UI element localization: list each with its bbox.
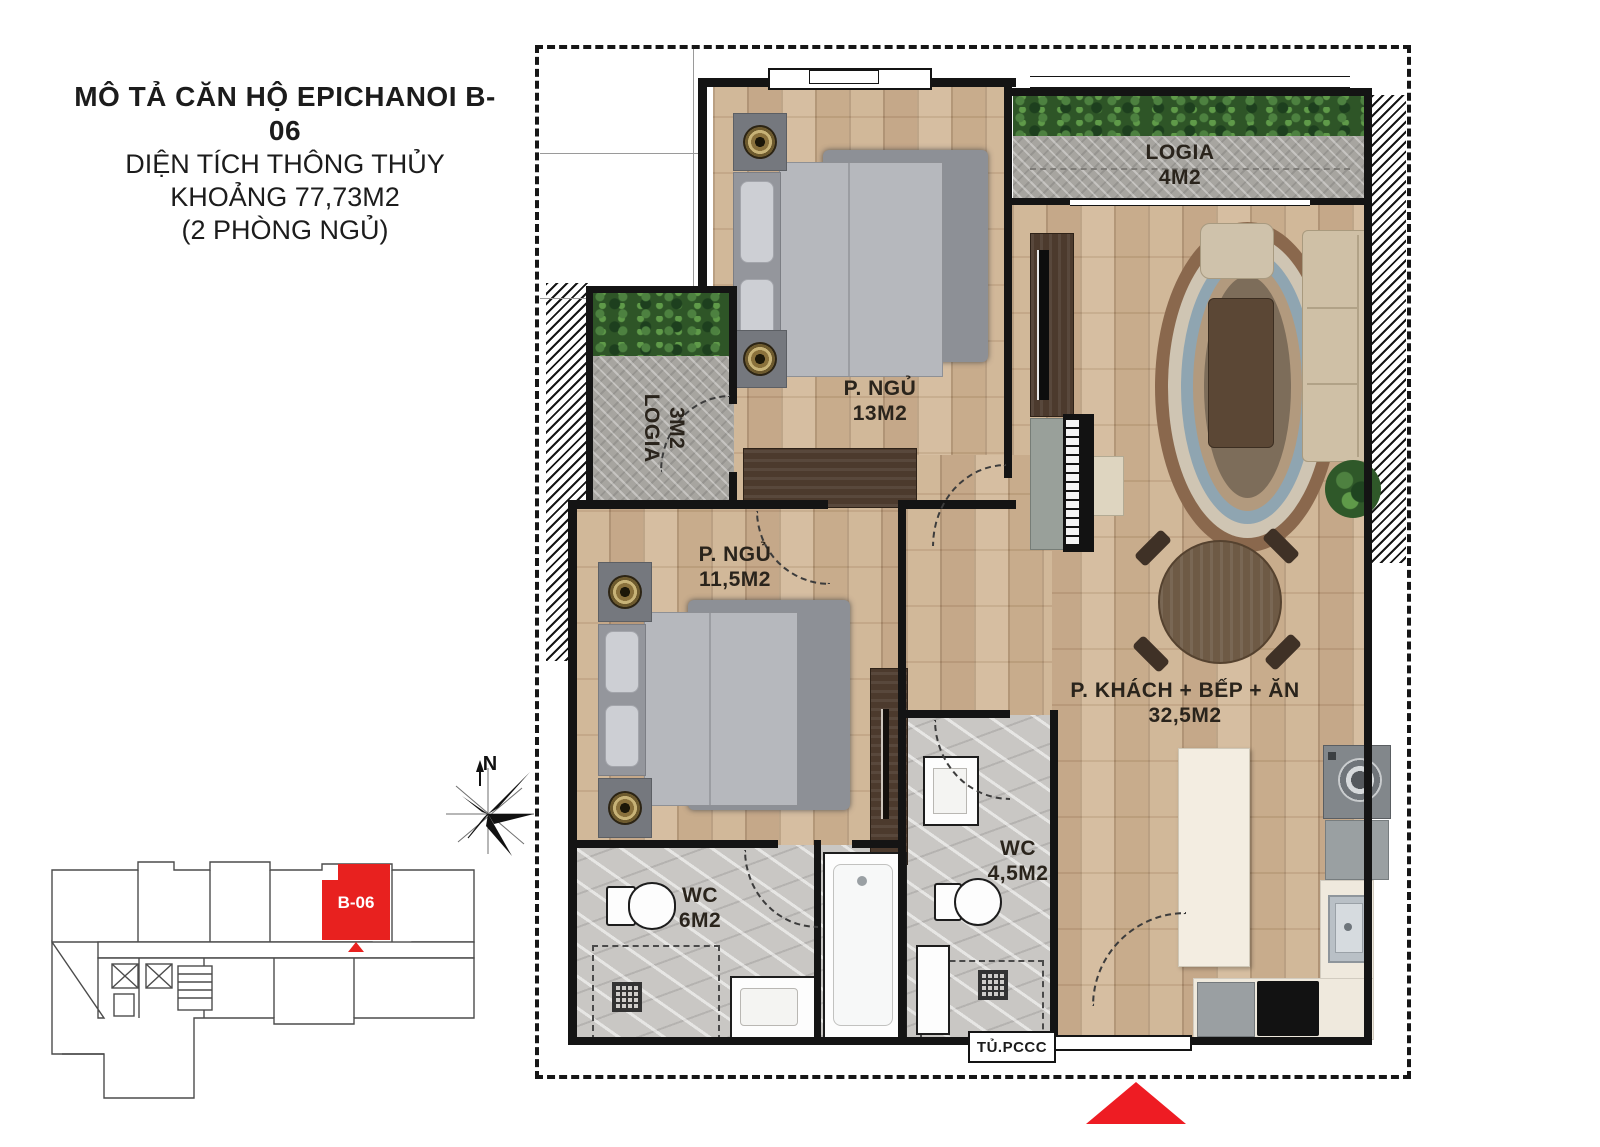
logia4-planter (1013, 94, 1365, 136)
washer-drum (1338, 758, 1382, 802)
lamp-icon (743, 125, 777, 159)
plan-title: MÔ TẢ CĂN HỘ EPICHANOI B-06 DIỆN TÍCH TH… (60, 80, 510, 247)
projection-line (540, 153, 698, 154)
projection-line (540, 298, 590, 299)
room-name: P. NGỦ (780, 376, 980, 401)
living-logia-glass (1070, 199, 1310, 206)
title-line-4: (2 PHÒNG NGỦ) (60, 214, 510, 247)
pillow (605, 705, 639, 767)
coffee-table (1208, 298, 1274, 448)
cabinet-handle (881, 709, 889, 819)
room-area: 4M2 (1090, 165, 1270, 190)
bathtub (823, 852, 907, 1040)
keyplan-minimap: B-06 (42, 842, 487, 1122)
sofa (1302, 230, 1370, 462)
floorplan-page: MÔ TẢ CĂN HỘ EPICHANOI B-06 DIỆN TÍCH TH… (0, 0, 1600, 1147)
side-table (1090, 456, 1124, 516)
wc1-label: WC 6M2 (625, 883, 775, 933)
bedroom2-label: P. NGỦ 11,5M2 (635, 542, 835, 592)
main-floorplan: P. NGỦ 13M2 P. NGỦ 11,5M2 P. KHÁCH + BẾP… (530, 40, 1410, 1147)
title-line-2: DIỆN TÍCH THÔNG THỦY (60, 148, 510, 181)
room-area: 6M2 (625, 908, 775, 933)
window-band (768, 68, 932, 90)
room-area: 32,5M2 (1060, 703, 1310, 728)
piano (1063, 414, 1094, 552)
wall (898, 500, 906, 1045)
wall (586, 286, 736, 293)
entry-mat-cabinet (1197, 982, 1255, 1037)
logia3-planter (593, 290, 734, 356)
pillow (740, 181, 774, 263)
room-name: WC (948, 836, 1088, 861)
piano-bench (1030, 418, 1066, 550)
wall (729, 286, 737, 404)
lamp-icon (743, 342, 777, 376)
bedroom1-wardrobe (743, 448, 917, 508)
room-name: WC (625, 883, 775, 908)
tv-screen (1037, 250, 1049, 400)
title-line-1: MÔ TẢ CĂN HỘ EPICHANOI B-06 (60, 80, 510, 148)
bedroom1-bed (779, 162, 943, 377)
sofa-seam (1307, 383, 1359, 385)
compass-north-label: N (483, 753, 497, 775)
wall (852, 840, 906, 848)
living-label: P. KHÁCH + BẾP + ĂN 32,5M2 (1060, 678, 1310, 728)
entry-threshold (1052, 1035, 1192, 1051)
bathtub-inner (833, 864, 893, 1026)
bedroom1-nightstand (733, 113, 787, 171)
logia4-label: LOGIA 4M2 (1090, 140, 1270, 190)
logia3-label: 3M2 LOGIA (639, 383, 689, 473)
washing-machine (1323, 745, 1391, 819)
kitchen-cabinet-gray (1325, 820, 1389, 880)
room-area: 11,5M2 (635, 567, 835, 592)
wall (898, 710, 1010, 718)
room-area: 13M2 (780, 401, 980, 426)
tv-console (1030, 233, 1074, 417)
bed-fold-line (709, 613, 711, 805)
roof-vent-symbol (810, 71, 878, 83)
room-name: P. KHÁCH + BẾP + ĂN (1060, 678, 1310, 703)
shower-drain (978, 970, 1008, 1000)
room-name: P. NGỦ (635, 542, 835, 567)
projection-line (693, 49, 694, 289)
cooktop (1257, 981, 1319, 1036)
wall (586, 286, 593, 508)
wall (568, 500, 577, 1045)
lamp-icon (608, 791, 642, 825)
piano-keys (1066, 420, 1079, 546)
fire-cabinet-box: TỦ.PCCC (968, 1031, 1056, 1063)
sofa-seam (1357, 235, 1359, 457)
bedroom2-bed (644, 612, 798, 806)
room-name: LOGIA (1090, 140, 1270, 165)
bed-fold-line (848, 163, 850, 376)
sink-drain (1344, 923, 1352, 931)
wall (1004, 78, 1012, 478)
bedroom2-nightstand (598, 778, 652, 838)
dining-table (1158, 540, 1282, 664)
wc1-vanity (730, 976, 818, 1040)
potted-plant (1325, 460, 1381, 518)
room-name: LOGIA (639, 383, 664, 473)
fire-cabinet-label: TỦ.PCCC (977, 1039, 1047, 1056)
bathtub-drain (857, 876, 867, 886)
room-area: 3M2 (664, 383, 689, 473)
unit-b06-label: B-06 (338, 893, 375, 912)
wc2-label: WC 4,5M2 (948, 836, 1088, 886)
wall (568, 500, 828, 509)
washer-dial (1328, 752, 1336, 760)
logia4-window-glass (1030, 76, 1350, 88)
entrance-marker-triangle (1086, 1082, 1186, 1124)
title-line-3: KHOẢNG 77,73M2 (60, 181, 510, 214)
shower-drain (612, 982, 642, 1012)
pillow (605, 631, 639, 693)
bedroom1-nightstand (733, 330, 787, 388)
room-area: 4,5M2 (948, 861, 1088, 886)
wall (1364, 88, 1372, 1045)
wc2-door-leaf (916, 945, 950, 1035)
bedroom1-label: P. NGỦ 13M2 (780, 376, 980, 426)
ottoman-pouf (1200, 223, 1274, 279)
wall (1010, 88, 1372, 96)
sofa-seam (1307, 307, 1359, 309)
wall (698, 78, 707, 293)
kitchen-island (1178, 748, 1250, 967)
vanity-basin (740, 988, 798, 1026)
wall (568, 840, 778, 848)
bedroom2-headboard (598, 624, 646, 776)
